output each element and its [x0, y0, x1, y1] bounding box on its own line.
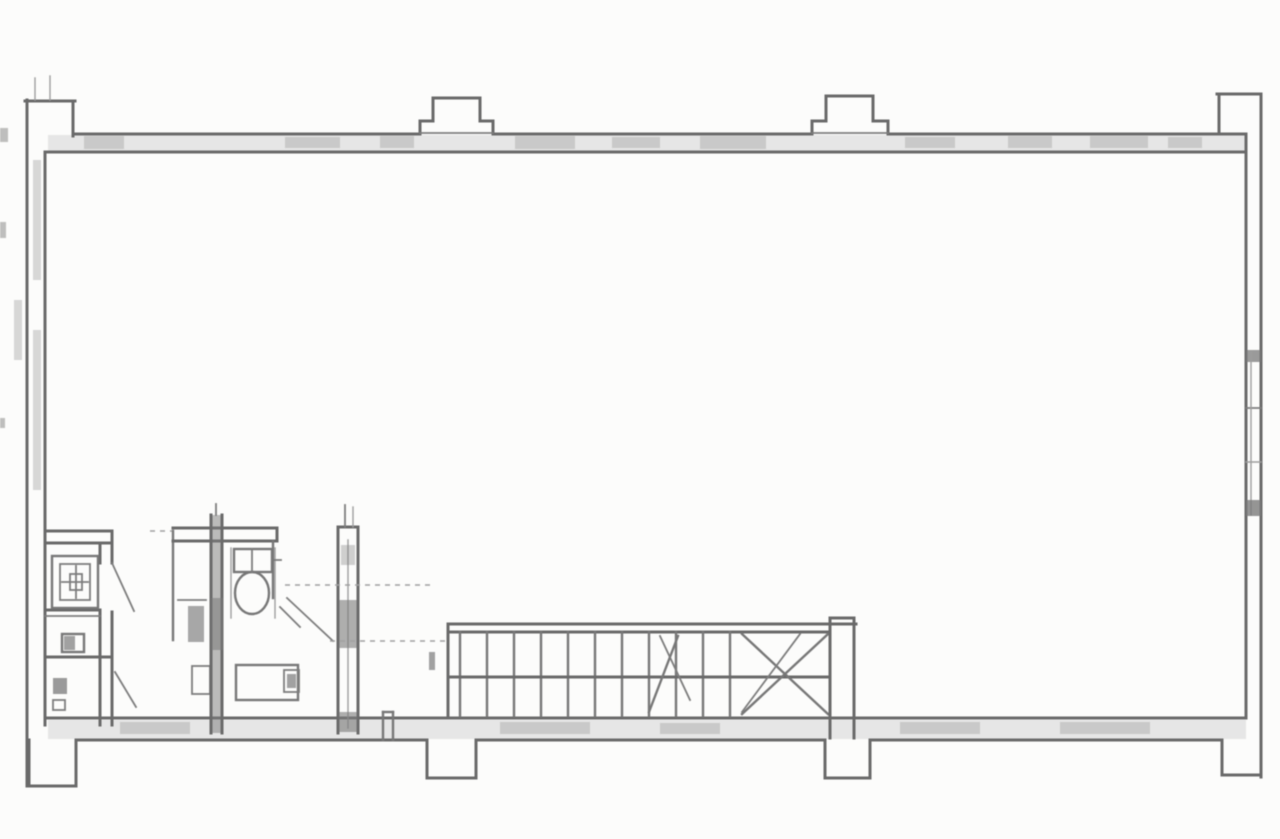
counter-fixture: [236, 665, 299, 700]
pilaster-bottom-left: [29, 740, 76, 786]
small-fixture: [53, 678, 67, 694]
pilaster-top-2: [812, 96, 888, 134]
pilaster-top-1: [420, 98, 493, 134]
service-fixture-2: [192, 666, 210, 694]
floor-plan-scan: [0, 0, 1280, 839]
pilaster-top-left: [25, 76, 75, 136]
pilaster-bottom-2: [825, 740, 870, 778]
service-block: [45, 504, 448, 740]
scan-artifacts: [0, 128, 41, 490]
toilet-room-wall: [211, 515, 223, 733]
door-swings-closet: [112, 563, 136, 707]
small-fixture-2: [53, 700, 65, 710]
shower-tray: [52, 556, 98, 608]
duct: [338, 505, 358, 733]
wash-basin: [62, 634, 84, 652]
pilaster-bottom-right: [1222, 740, 1259, 775]
wall-poche: [48, 135, 1246, 739]
floor-plan-drawing: [0, 0, 1280, 839]
service-fixture: [188, 606, 204, 642]
window-right-wall: [1246, 350, 1261, 516]
stair-risers: [460, 632, 730, 716]
pilaster-bottom-1: [427, 740, 476, 778]
